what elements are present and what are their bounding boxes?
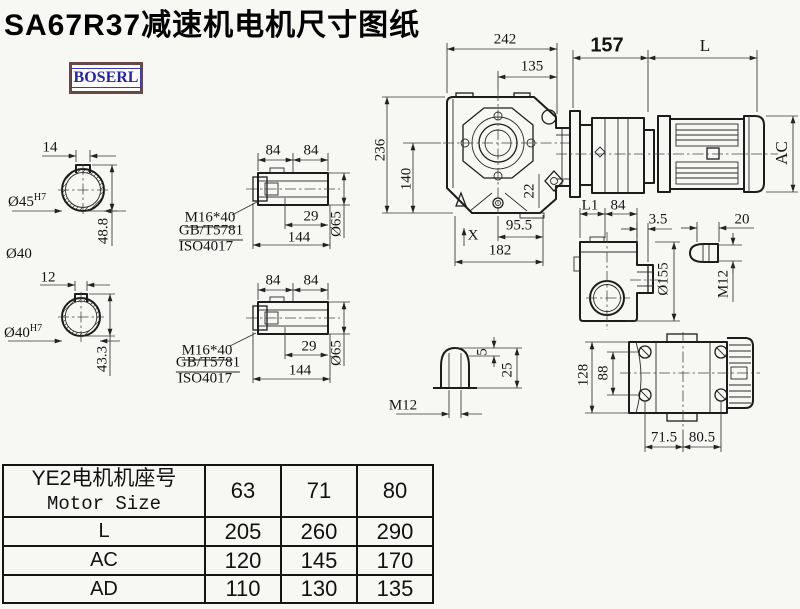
motor-top-view [556, 50, 798, 197]
dim-motor-length: L [700, 36, 710, 56]
dim-sleeve-b-seg1: 84 [266, 274, 281, 289]
table-cell-AD-63: 110 [205, 575, 281, 603]
table-cell-L-63: 205 [205, 517, 281, 546]
dim-side-flange-dia: Ø155 [657, 262, 672, 295]
dim-sleeve-b-seg2: 84 [304, 274, 319, 289]
table-header-motor-size: YE2电机机座号 Motor Size [3, 465, 205, 517]
table-cell-L-80: 290 [357, 517, 433, 546]
label-side-thread: M12 [717, 270, 732, 298]
dim-sleeve-a-seg2: 84 [304, 144, 319, 159]
dim-front-bolt-offset: 135 [521, 60, 544, 75]
dim-front-center-edge: 95.5 [506, 219, 532, 234]
dim-sleeve-length-b: 144 [289, 364, 312, 379]
table-size-71: 71 [281, 465, 357, 517]
table-cell-AC-63: 120 [205, 546, 281, 575]
dim-sleeve-a-seg1: 84 [266, 144, 281, 159]
dim-bore-a: Ø45H7 [8, 193, 46, 210]
table-cell-AD-80: 135 [357, 575, 433, 603]
brand-logo: BOSERL [69, 62, 143, 94]
dim-sleeve-dia-a: Ø65 [330, 211, 345, 237]
table-row-L: L 205 260 290 [3, 517, 433, 546]
dim-engage-depth-a: 29 [304, 210, 319, 225]
dim-front-plug: 22 [523, 184, 538, 199]
table-header-en: Motor Size [4, 492, 204, 516]
motor-size-table: YE2电机机座号 Motor Size 63 71 80 L 205 260 2… [2, 464, 434, 604]
label-x-mark: X [468, 229, 479, 244]
dim-rear-span-left: 71.5 [651, 431, 677, 446]
dim-engage-depth-b: 29 [302, 340, 317, 355]
dim-keyway-depth-a: 48.8 [97, 218, 112, 244]
dim-keyway-width-a: 14 [43, 141, 58, 156]
table-size-63: 63 [205, 465, 281, 517]
dim-front-center-height: 140 [400, 168, 415, 191]
dim-front-base-width: 182 [489, 244, 512, 259]
dim-keyway-depth-b: 43.3 [96, 346, 111, 372]
table-header-cn: YE2电机机座号 [4, 466, 204, 492]
table-cell-L-71: 260 [281, 517, 357, 546]
table-row-AC: AC 120 145 170 [3, 546, 433, 575]
dim-side-gap: 3.5 [649, 213, 668, 228]
dim-side-l1: L1 [582, 199, 599, 214]
dim-sleeve-length-a: 144 [288, 231, 311, 246]
dim-plug-tip: 5 [476, 348, 491, 356]
table-cell-AD-71: 130 [281, 575, 357, 603]
table-row-label-L: L [3, 517, 205, 546]
table-row-label-AD: AD [3, 575, 205, 603]
label-std-iso-a: ISO4017 [179, 240, 233, 255]
table-row-label-AC: AC [3, 546, 205, 575]
dim-rear-span-right: 80.5 [689, 431, 715, 446]
table-row-AD: AD 110 130 135 [3, 575, 433, 603]
dim-adapter-length: 157 [590, 35, 623, 58]
dim-keyway-width-b: 12 [41, 271, 56, 286]
dim-front-height: 236 [374, 139, 389, 162]
dim-side-20: 20 [735, 213, 750, 228]
dim-front-width: 242 [494, 33, 517, 48]
label-shaft-dia-a: Ø40 [6, 247, 32, 262]
table-cell-AC-71: 145 [281, 546, 357, 575]
label-std-iso-b: ISO4017 [178, 372, 232, 387]
dim-motor-dia: AC [772, 141, 792, 165]
table-cell-AC-80: 170 [357, 546, 433, 575]
dim-bore-b: Ø40H7 [4, 324, 42, 341]
page-title: SA67R37减速机电机尺寸图纸 [4, 0, 420, 44]
label-plug-thread: M12 [389, 399, 417, 414]
dim-plug-height: 25 [501, 363, 516, 378]
drawing-page: SA67R37减速机电机尺寸图纸 BOSERL 14 Ø45H7 48.8 Ø4… [0, 0, 800, 609]
dim-side-84: 84 [611, 199, 626, 214]
table-size-80: 80 [357, 465, 433, 517]
dim-rear-inner-height: 88 [597, 366, 612, 381]
dim-rear-height: 128 [577, 364, 592, 387]
dim-sleeve-dia-b: Ø65 [330, 340, 345, 366]
table-header-row: YE2电机机座号 Motor Size 63 71 80 [3, 465, 433, 517]
brand-logo-text: BOSERL [71, 68, 142, 88]
